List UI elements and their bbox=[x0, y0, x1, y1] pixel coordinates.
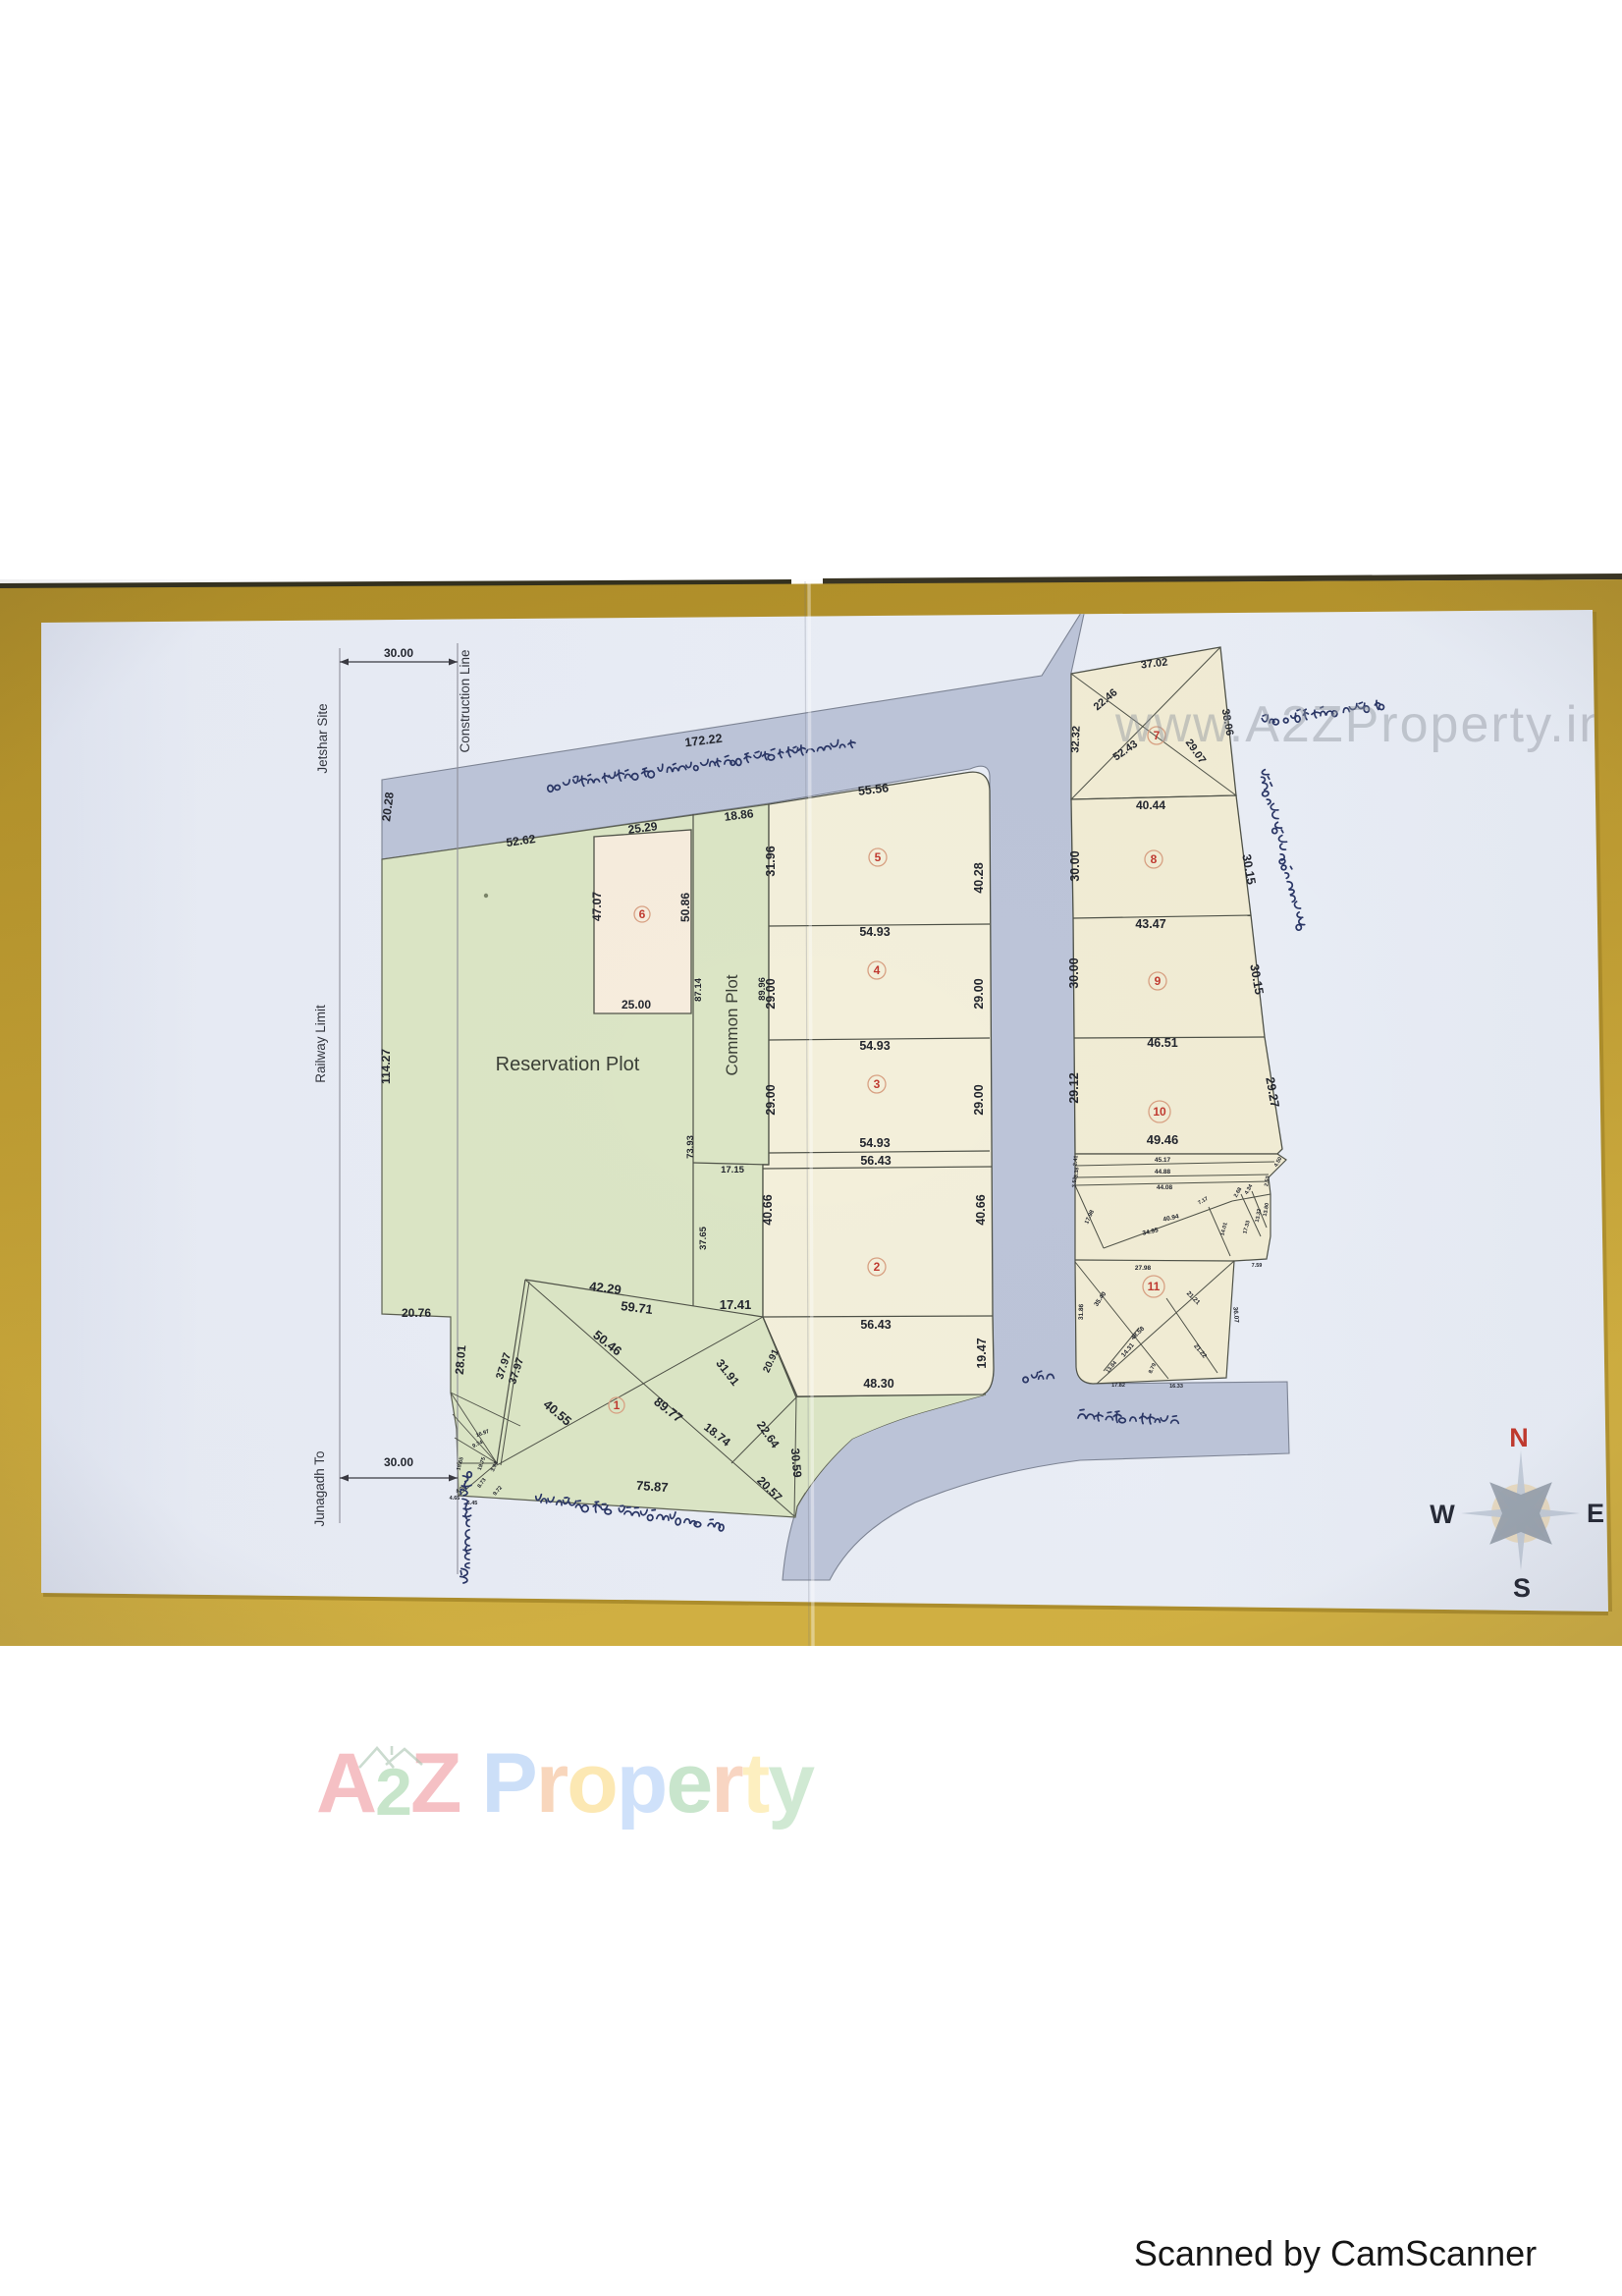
svg-text:Scanned by CamScanner: Scanned by CamScanner bbox=[1134, 2233, 1537, 2273]
